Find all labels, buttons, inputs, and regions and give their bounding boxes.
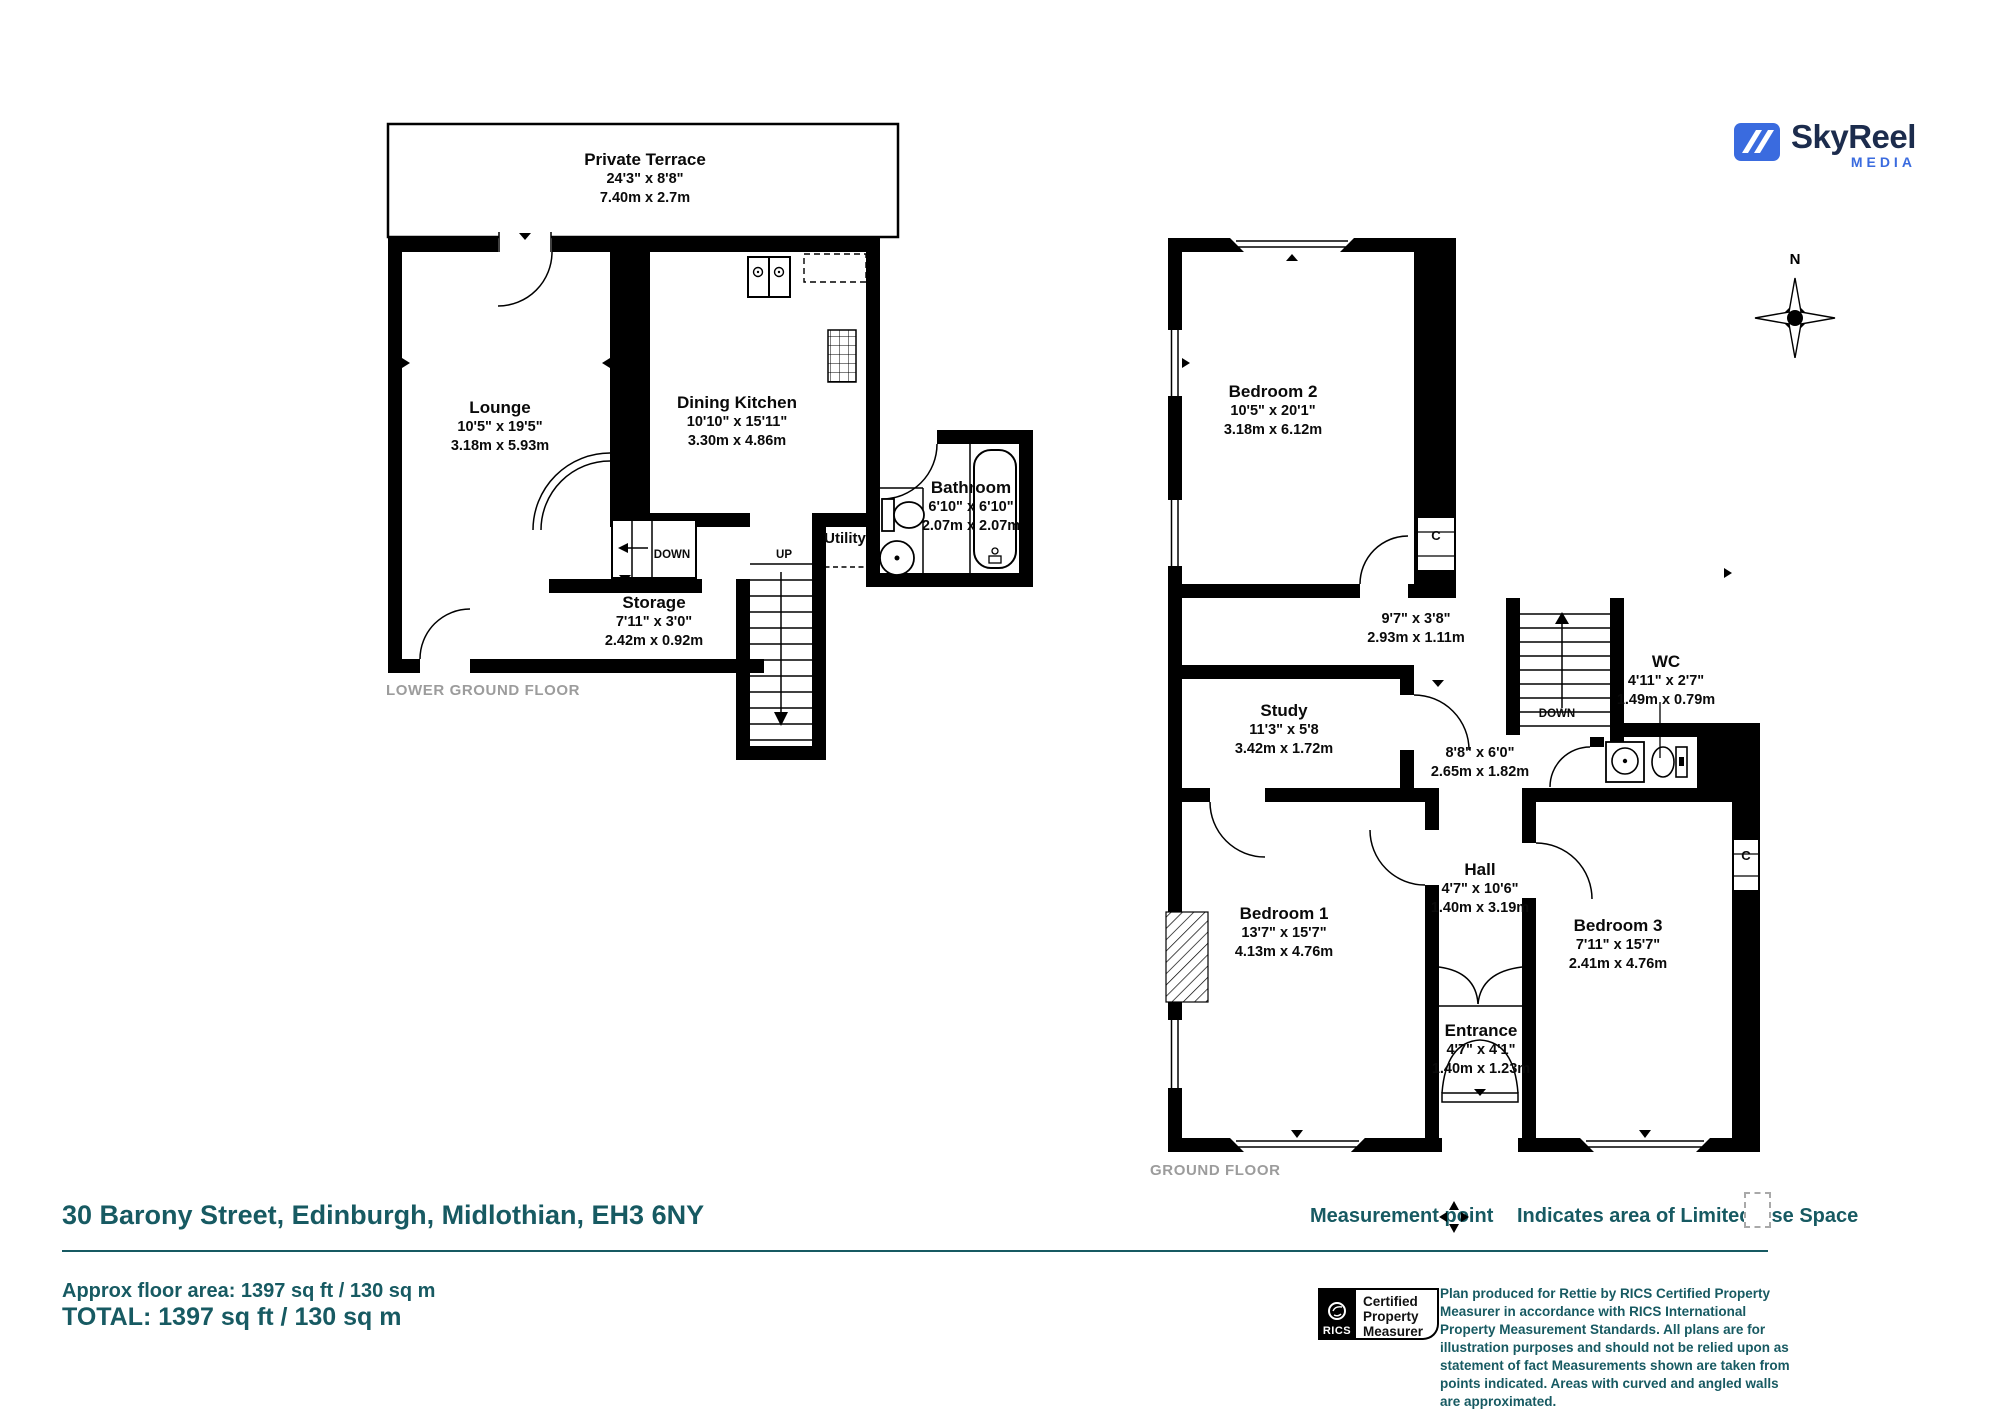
cupboard-label-1: C (1431, 528, 1440, 543)
skyreel-logo: SkyReel MEDIA (1733, 120, 1916, 170)
room-label-bathroom: Bathroom 6'10" x 6'10" 2.07m x 2.07m (922, 478, 1020, 536)
room-label-inner-hall: 8'8" x 6'0" 2.65m x 1.82m (1431, 744, 1529, 782)
room-label-entrance: Entrance 4'7" x 4'1" 1.40m x 1.23m (1432, 1021, 1530, 1079)
limited-use-swatch (1744, 1192, 1771, 1228)
rics-line1: Certified (1363, 1294, 1437, 1309)
stairs-up (750, 564, 812, 740)
room-label-bedroom1: Bedroom 1 13'7" x 15'7" 4.13m x 4.76m (1235, 904, 1333, 962)
rics-lion-icon (1326, 1299, 1348, 1325)
skyreel-logo-icon (1733, 120, 1783, 164)
measurement-point-icon (1437, 1198, 1471, 1236)
cupboard-label-2: C (1741, 848, 1750, 863)
toilet-icon (882, 499, 894, 531)
room-label-hall: Hall 4'7" x 10'6" 1.40m x 3.19m (1431, 860, 1529, 918)
compass-north-label: N (1790, 251, 1801, 268)
room-label-study: Study 11'3" x 5'8 3.42m x 1.72m (1235, 701, 1333, 759)
rics-line3: Measurer (1363, 1324, 1437, 1339)
room-label-wc: WC 4'11" x 2'7" 1.49m x 0.79m (1617, 652, 1715, 710)
room-label-storage: Storage 7'11" x 3'0" 2.42m x 0.92m (605, 593, 703, 651)
room-label-bedroom2: Bedroom 2 10'5" x 20'1" 3.18m x 6.12m (1224, 382, 1322, 440)
room-label-utility: Utility (824, 529, 866, 549)
limited-use-area (1166, 912, 1208, 1002)
rics-badge: RICS Certified Property Measurer (1318, 1288, 1439, 1340)
room-label-private-terrace: Private Terrace 24'3" x 8'8" 7.40m x 2.7… (584, 150, 706, 208)
floorplan-page: Private Terrace 24'3" x 8'8" 7.40m x 2.7… (0, 0, 2000, 1414)
stairs-label-down-lower: DOWN (654, 549, 690, 562)
room-label-dining-kitchen: Dining Kitchen 10'10" x 15'11" 3.30m x 4… (677, 393, 797, 451)
room-label-lounge: Lounge 10'5" x 19'5" 3.18m x 5.93m (451, 398, 549, 456)
kitchen-fixtures (748, 254, 866, 382)
stairs-label-down-ground: DOWN (1539, 708, 1575, 721)
rics-line2: Property (1363, 1309, 1437, 1324)
logo-tagline: MEDIA (1791, 154, 1916, 170)
rics-org-label: RICS (1323, 1325, 1351, 1337)
legend-limited-use: Indicates area of Limited Use Space (1517, 1205, 1858, 1228)
counter-dashed (804, 254, 866, 282)
approx-floor-area: Approx floor area: 1397 sq ft / 130 sq m (62, 1280, 435, 1303)
toilet-icon (1652, 747, 1674, 777)
room-label-landing: 9'7" x 3'8" 2.93m x 1.11m (1367, 610, 1465, 648)
stairs-label-up-lower: UP (776, 549, 792, 562)
logo-name: SkyReel (1791, 120, 1916, 154)
room-label-bedroom3: Bedroom 3 7'11" x 15'7" 2.41m x 4.76m (1569, 916, 1667, 974)
radiator-grid (828, 330, 856, 382)
total-floor-area: TOTAL: 1397 sq ft / 130 sq m (62, 1303, 401, 1332)
plan-disclaimer: Plan produced for Rettie by RICS Certifi… (1440, 1285, 1792, 1411)
compass-rose-icon: N (1748, 248, 1842, 358)
curved-wall (533, 453, 610, 530)
lower-ground-floor-title: LOWER GROUND FLOOR (386, 682, 580, 699)
divider-line (62, 1250, 1768, 1252)
property-address: 30 Barony Street, Edinburgh, Midlothian,… (62, 1200, 704, 1231)
ground-floor-title: GROUND FLOOR (1150, 1162, 1281, 1179)
